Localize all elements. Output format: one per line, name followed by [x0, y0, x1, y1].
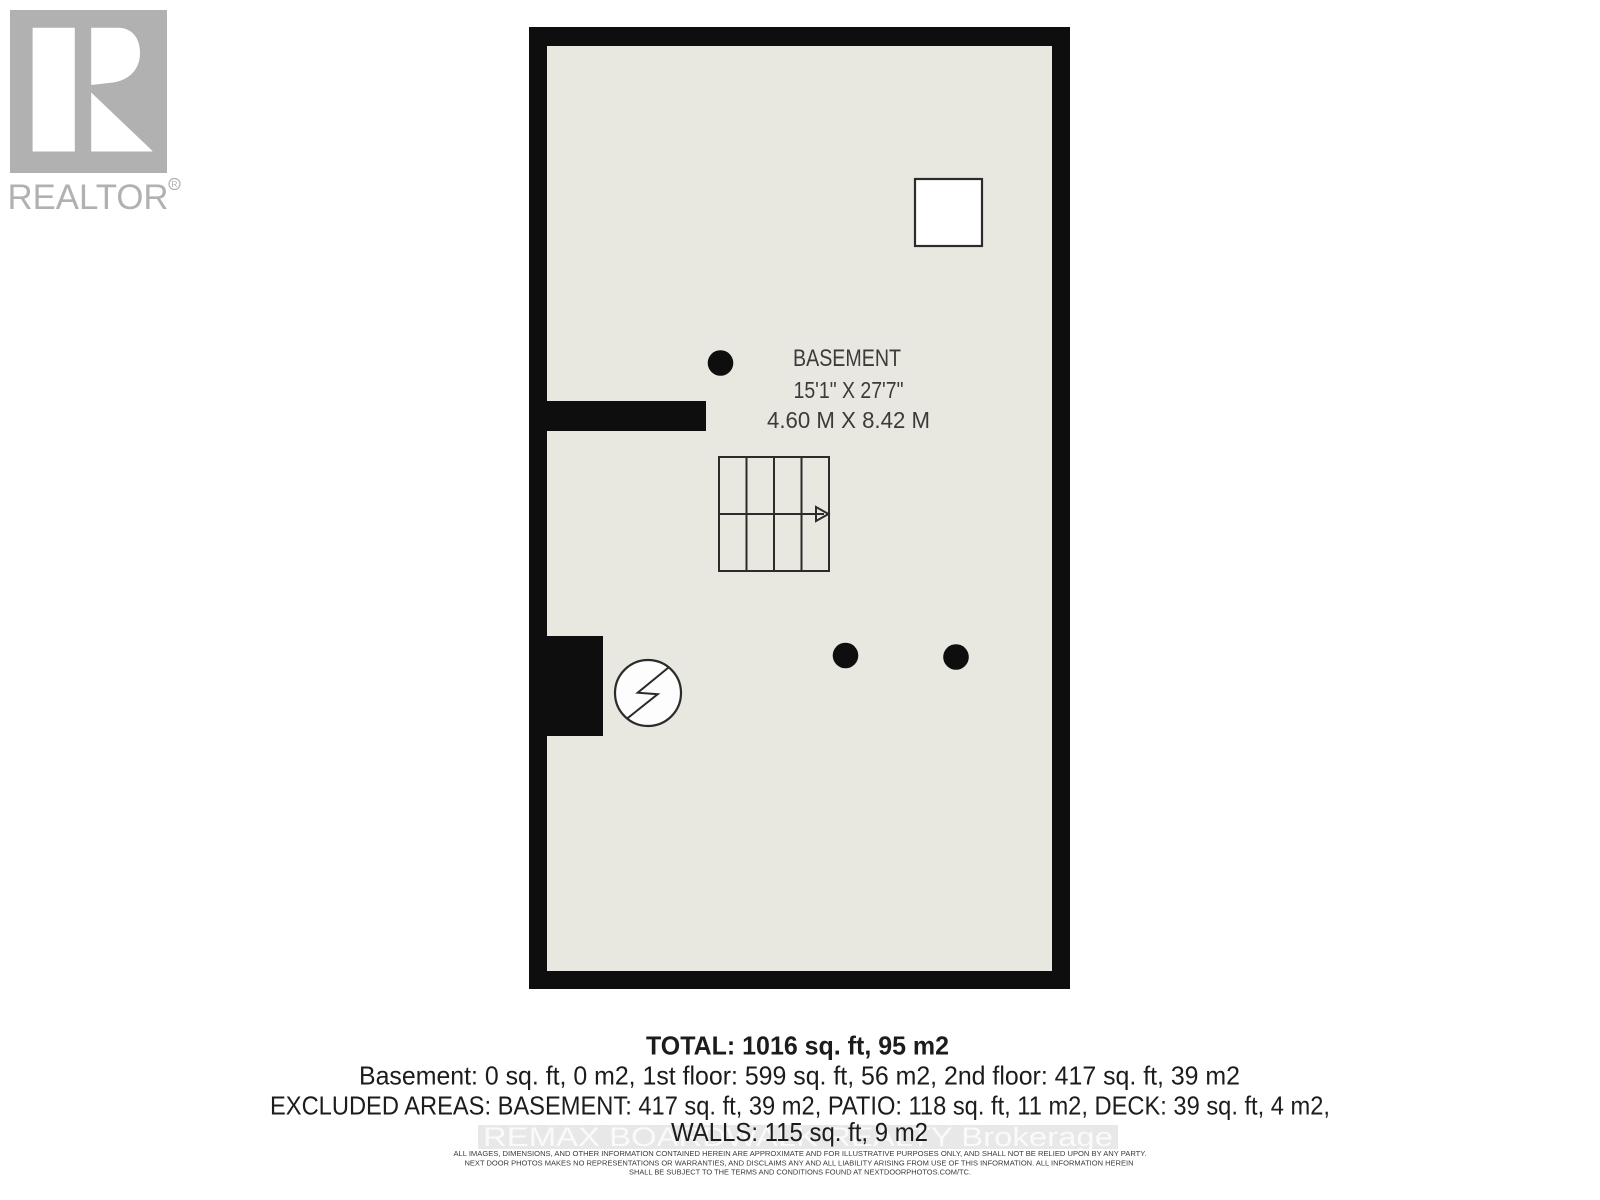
- svg-text:15'1" X 27'7": 15'1" X 27'7": [794, 377, 904, 403]
- svg-text:NEXT DOOR PHOTOS MAKES NO REPR: NEXT DOOR PHOTOS MAKES NO REPRESENTATION…: [465, 1159, 1134, 1168]
- svg-text:BASEMENT: BASEMENT: [793, 345, 901, 372]
- svg-text:Basement: 0 sq. ft, 0 m2, 1st: Basement: 0 sq. ft, 0 m2, 1st floor: 599…: [359, 1061, 1240, 1091]
- svg-text:REALTOR: REALTOR: [8, 177, 169, 217]
- svg-text:ALL IMAGES, DIMENSIONS, AND OT: ALL IMAGES, DIMENSIONS, AND OTHER INFORM…: [454, 1149, 1147, 1158]
- svg-text:EXCLUDED AREAS: BASEMENT: 417: EXCLUDED AREAS: BASEMENT: 417 sq. ft, 39…: [270, 1091, 1330, 1121]
- svg-text:WALLS: 115 sq. ft, 9 m2: WALLS: 115 sq. ft, 9 m2: [671, 1117, 928, 1147]
- svg-text:R: R: [171, 179, 177, 189]
- svg-text:SHALL BE SUBJECT TO THE TERMS: SHALL BE SUBJECT TO THE TERMS AND CONDIT…: [629, 1168, 971, 1177]
- svg-text:TOTAL: 1016 sq. ft, 95 m2: TOTAL: 1016 sq. ft, 95 m2: [646, 1031, 949, 1061]
- svg-text:4.60 M X 8.42 M: 4.60 M X 8.42 M: [767, 407, 930, 433]
